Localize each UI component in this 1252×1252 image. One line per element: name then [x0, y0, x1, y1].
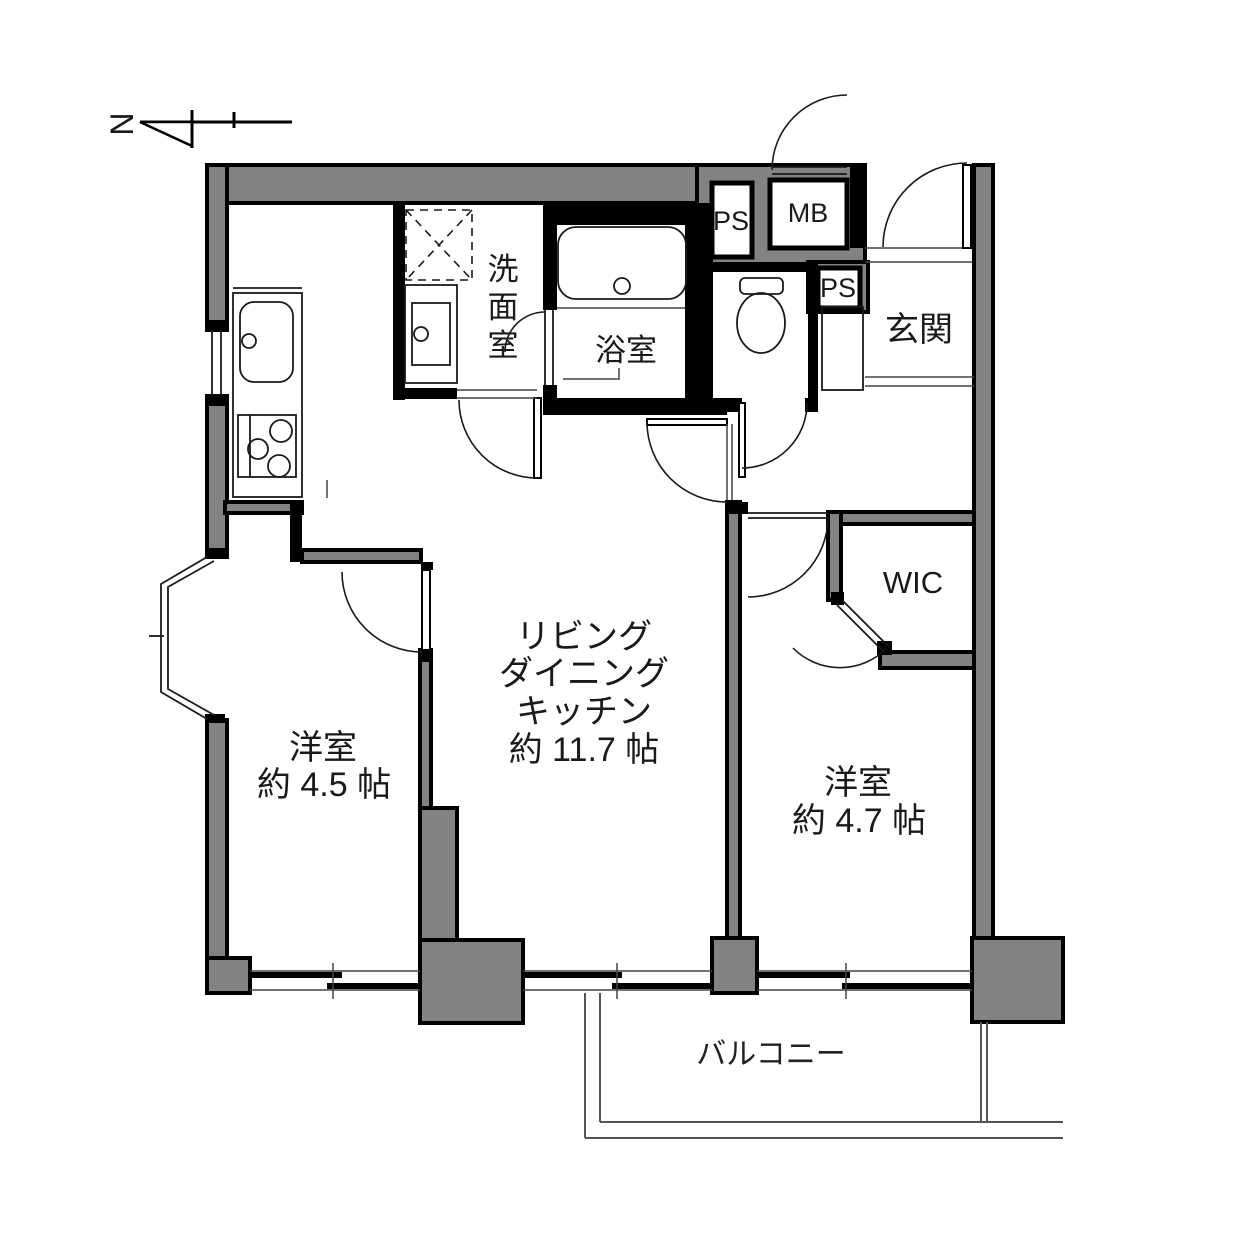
wall-corner-foot-sw [207, 958, 250, 993]
entrance-door-swing [883, 163, 967, 247]
north-arrow: N [104, 110, 292, 148]
label-balcony: バルコニー [696, 1038, 845, 1071]
label-bedroom-west: 洋室 [289, 729, 357, 767]
wall-bathroom-west-lower [543, 385, 557, 400]
kitchen-counter [233, 288, 327, 498]
label-ps-side: PS [820, 273, 856, 303]
wall-left-lower [207, 720, 227, 993]
floorplan-page: N [0, 0, 1252, 1252]
svg-text:ダイニング: ダイニング [499, 655, 669, 693]
wall-wic-south [880, 652, 974, 668]
wall-wic-north [828, 512, 974, 524]
floorplan-drawing: N [0, 0, 1252, 1252]
stove-burner [248, 439, 268, 459]
wall-right [974, 165, 993, 940]
sliding-window-east [757, 963, 972, 999]
label-ps-top: PS [713, 206, 749, 236]
window-jamb-west-bottom [205, 396, 227, 406]
washroom-door [534, 398, 541, 478]
sliding-window-west [250, 963, 420, 999]
door-jamb-bedroom-east [727, 502, 748, 514]
wic-door-jamb-top [831, 592, 844, 605]
bathroom-label-leader [563, 368, 619, 379]
wic-door [842, 600, 889, 647]
svg-text:約 4.5 帖: 約 4.5 帖 [257, 766, 391, 804]
wall-bathroom-west-upper [543, 225, 557, 310]
bay-window-inner [168, 561, 214, 715]
wall-toilet-south-left [713, 398, 742, 412]
pillar-south-west [420, 940, 523, 1023]
north-label: N [104, 112, 140, 135]
bedroom-west-door [422, 570, 430, 650]
bathtub [558, 227, 686, 299]
vanity-sink [412, 303, 450, 365]
wall-washroom-west [393, 203, 405, 400]
toilet-tank [740, 278, 783, 294]
bay-window-jamb-bottom [205, 714, 225, 723]
wall-bathroom-south [543, 398, 727, 415]
stove-burner [270, 420, 292, 442]
wall-bedroomwest-north [302, 550, 421, 562]
vanity-faucet [414, 327, 428, 341]
entrance-door [963, 165, 971, 248]
svg-text:約 11.7 帖: 約 11.7 帖 [509, 731, 660, 769]
kitchen-faucet [242, 334, 256, 348]
window-jamb-west-top [205, 320, 227, 330]
ldk-door [647, 419, 727, 425]
svg-text:面: 面 [488, 290, 519, 325]
bathtub-drain [614, 278, 630, 294]
wall-left-upper [207, 165, 227, 330]
bay-window-jamb-top [205, 548, 225, 557]
washroom-fixtures [405, 210, 472, 383]
svg-text:室: 室 [488, 328, 519, 363]
toilet-door [739, 403, 745, 477]
door-jamb-bedroom-west-top [421, 562, 433, 570]
door-jamb-bedroom-west-bottom [421, 650, 433, 662]
label-bedroom-east: 洋室 [824, 764, 892, 802]
wall-partition-center [727, 502, 740, 938]
toilet-fixture [737, 278, 785, 353]
wall-wic-west [828, 512, 841, 600]
wall-partition-west [420, 650, 431, 808]
bedroom-west-door-swing [342, 572, 422, 652]
wall-partition-west-step [420, 808, 457, 940]
svg-text:約 4.7 帖: 約 4.7 帖 [792, 802, 926, 840]
wall-bathroom-east [685, 203, 713, 415]
label-bathroom: 浴室 [595, 333, 657, 368]
north-arrowhead [140, 122, 192, 146]
label-wic: WIC [883, 565, 943, 600]
wall-top [207, 165, 697, 203]
wall-bathroom-north [543, 203, 700, 225]
shoe-cabinet [822, 307, 863, 390]
ldk-door-swing [647, 422, 727, 502]
pillar-southeast [972, 938, 1063, 1022]
label-washroom: 洗 [488, 252, 519, 287]
washroom-door-swing [459, 400, 537, 478]
kitchen-sink [240, 302, 293, 382]
pillar-south-center [712, 938, 757, 993]
wic-door-swing [793, 648, 887, 668]
meter-box-door [772, 95, 847, 174]
svg-text:キッチン: キッチン [516, 693, 652, 731]
label-entrance: 玄関 [885, 311, 953, 349]
wall-left-mid [207, 396, 227, 557]
wall-washroom-south [400, 388, 457, 399]
stove-burner [268, 455, 290, 477]
bedroom-east-door-swing [748, 517, 828, 597]
wall-step-joint [290, 502, 302, 562]
wall-entry-west-stub [850, 165, 865, 248]
label-mb: MB [788, 198, 829, 228]
sliding-window-ldk [523, 963, 712, 999]
label-ldk: リビング [516, 618, 652, 656]
toilet-door-swing [742, 403, 807, 468]
wall-toilet-north [713, 262, 818, 272]
toilet-bowl [737, 293, 785, 353]
